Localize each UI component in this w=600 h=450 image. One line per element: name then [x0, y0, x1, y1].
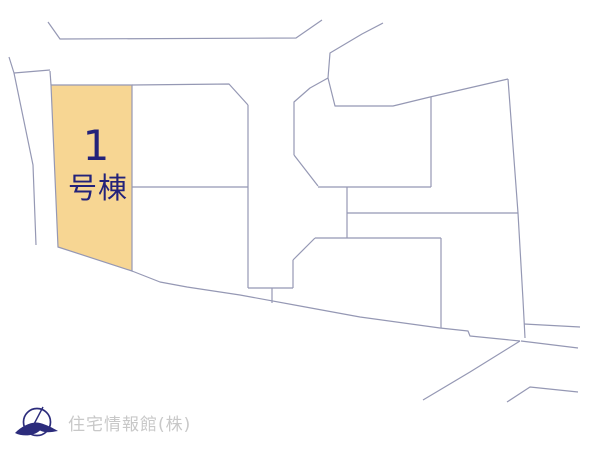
boundary-line [48, 20, 322, 39]
boundary-line [294, 155, 318, 186]
boundary-line [507, 387, 578, 402]
boundary-line [328, 78, 508, 106]
plot-map: 1 号棟 [0, 0, 600, 450]
boundary-line [423, 341, 520, 400]
boundary-line [50, 71, 51, 85]
company-crane-logo-icon [12, 402, 58, 442]
boundary-line [524, 324, 580, 327]
company-name-text: 住宅情報館(株) [68, 410, 191, 435]
lot-label-number: 1 [83, 121, 110, 170]
boundary-line [521, 341, 578, 348]
boundary-line [293, 238, 315, 260]
boundary-line [508, 79, 525, 338]
boundary-line [132, 271, 520, 341]
lot-label-suffix: 号棟 [68, 171, 128, 205]
boundary-line [9, 57, 50, 73]
footer-branding: 住宅情報館(株) [12, 402, 191, 442]
boundary-line [14, 73, 36, 245]
boundary-line [294, 78, 328, 155]
boundary-line [132, 84, 248, 105]
plot-map-page: 1 号棟 住宅情報館(株) [0, 0, 600, 450]
boundary-line [328, 23, 383, 78]
